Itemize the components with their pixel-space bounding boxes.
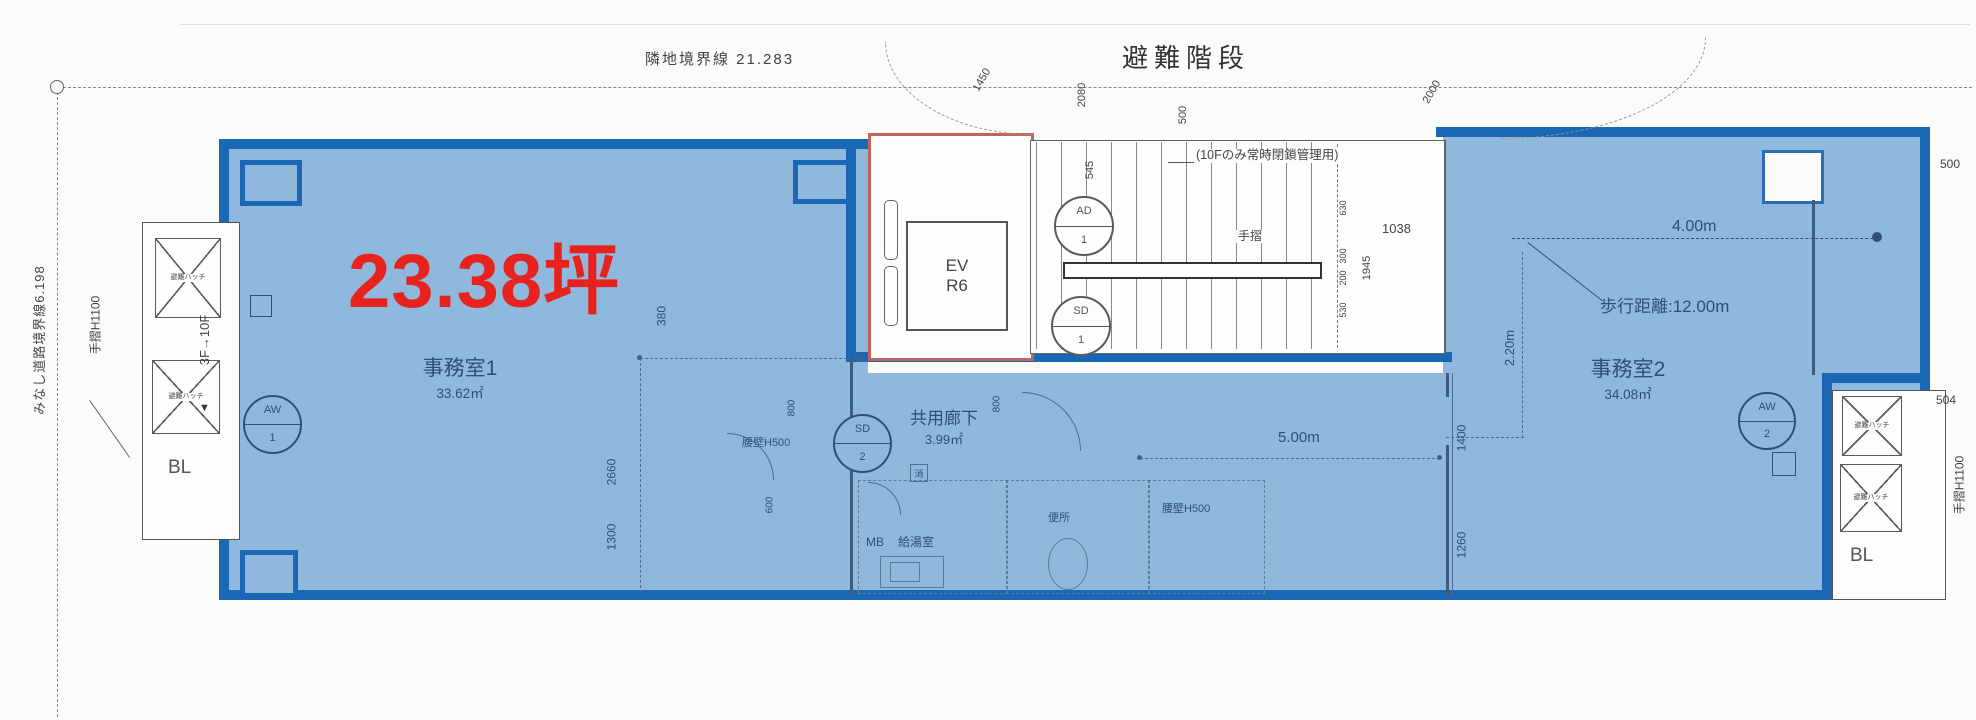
outline-room2-right (1920, 127, 1930, 393)
ev-cab: EV R6 (906, 221, 1008, 331)
room2-depth-dim: 2.20m (1503, 330, 1517, 366)
balcony-right-label: BL (1850, 546, 1873, 567)
aw1-num: 1 (245, 424, 300, 452)
dim-300: 300 (1339, 248, 1349, 263)
sd1-code: SD (1053, 298, 1109, 326)
ev-label-line1: EV (946, 256, 969, 276)
room2-area: 34.08㎡ (1558, 383, 1698, 403)
fire-extinguisher-label: 消 (914, 467, 923, 480)
dim-2000: 2000 (1421, 78, 1444, 105)
mb-label: MB (866, 536, 884, 549)
window-box-room2-top (1762, 150, 1824, 204)
wall-corridor-room2-a (1446, 373, 1449, 397)
dim-node (637, 355, 642, 360)
ad1-code: AD (1056, 198, 1112, 226)
dim-node (1137, 455, 1142, 460)
ev-door-slat-1 (884, 200, 898, 260)
wall-corridor-room2-b (1446, 445, 1449, 595)
handrail-right-label: 手摺H1100 (1953, 456, 1966, 514)
wall-room2-strip (1812, 200, 1815, 375)
dim-2660: 2660 (605, 459, 618, 486)
door-symbol-ad1: AD 1 (1054, 196, 1114, 256)
hatch-box-right-1: 避難ハッチ (1842, 396, 1902, 456)
aw2-code: AW (1740, 394, 1794, 421)
hatch-label: 避難ハッチ (1853, 494, 1890, 501)
stair-note: (10Fのみ常時閉鎖管理用) (1196, 149, 1338, 163)
room1-dim-line-v (640, 358, 641, 593)
room1-name: 事務室1 (395, 352, 525, 382)
room2-walk-distance: 歩行距離:12.00m (1600, 298, 1729, 317)
highlight-area-tsubo: 23.38坪 (348, 240, 620, 324)
dim-1400: 1400 (1455, 425, 1468, 452)
kitchen-sink-basin (890, 562, 920, 582)
window-symbol-aw2: AW 2 (1738, 392, 1796, 450)
stair-handrail-bar (1063, 262, 1322, 279)
stair-note-leader (1168, 162, 1194, 163)
dim-500-top: 500 (1177, 106, 1189, 124)
corridor-width-dim: 5.00m (1278, 430, 1320, 447)
room2-width-dim-line (1512, 238, 1878, 239)
dim-500-right: 500 (1940, 158, 1960, 171)
room2-width-dim: 4.00m (1672, 218, 1716, 236)
marker-box-room2 (1772, 452, 1796, 476)
room2-depth-dim-line-v (1522, 252, 1523, 438)
sd1-num: 1 (1053, 326, 1109, 355)
boundary-top-label: 隣地境界線 21.283 (645, 52, 794, 69)
dim-1300: 1300 (605, 524, 618, 551)
sd2-code: SD (835, 416, 890, 443)
room2-name: 事務室2 (1558, 353, 1698, 383)
dim-2080: 2080 (1076, 83, 1088, 107)
dim-600: 600 (765, 497, 776, 514)
dim-630: 630 (1339, 200, 1349, 215)
stair-title: 避難階段 (1122, 44, 1250, 73)
outline-balcony-left (1822, 373, 1832, 600)
room1-label-block: 事務室1 33.62㎡ (395, 352, 525, 402)
aw1-code: AW (245, 397, 300, 424)
kitchen-name: 給湯室 (898, 536, 934, 549)
door-arc-top-2 (1500, 38, 1706, 139)
room1-fill (223, 143, 868, 600)
hatch-box-right-2: 避難ハッチ (1840, 464, 1902, 532)
dim-chain-1400-1260 (1452, 373, 1453, 595)
door-symbol-sd1: SD 1 (1051, 296, 1111, 356)
handrail-left-leader (89, 400, 130, 458)
door-symbol-sd2: SD 2 (833, 414, 892, 473)
handrail-left-label: 手摺H1100 (89, 296, 102, 354)
stair-handrail-label: 手摺 (1236, 230, 1264, 243)
dim-800-a: 800 (787, 400, 798, 417)
room1-area: 33.62㎡ (395, 382, 525, 402)
boundary-line-left (57, 87, 58, 717)
dim-200: 200 (1339, 270, 1349, 285)
floor-plan: EV R6 手摺 (10Fのみ常時閉鎖管理用) AD 1 SD 1 1038 1… (0, 0, 1976, 720)
door-arc-top-1 (885, 42, 1034, 135)
dim-530: 530 (1339, 302, 1349, 317)
dim-1260: 1260 (1455, 532, 1468, 559)
toilet-name: 便所 (1048, 512, 1070, 524)
dim-1945: 1945 (1361, 256, 1373, 280)
column-notch-1 (240, 160, 302, 206)
hatch-label: 避難ハッチ (1854, 422, 1891, 429)
draft-line-top (180, 24, 1970, 25)
marker-box-room1 (250, 295, 272, 317)
dim-504: 504 (1936, 394, 1956, 407)
hatch-label: 避難ハッチ (168, 393, 205, 400)
dim-node (1437, 455, 1442, 460)
outline-balcony-top (1822, 373, 1930, 383)
corridor-dim-line (1140, 458, 1440, 459)
dim-545: 545 (1084, 161, 1096, 179)
ev-label-line2: R6 (946, 276, 968, 296)
ev-door-slat-2 (884, 266, 898, 326)
floors-range-arrow: ▼ (199, 402, 210, 414)
toilet-wc-icon (1048, 538, 1088, 590)
column-notch-3 (240, 550, 298, 598)
hatch-label: 避難ハッチ (170, 274, 207, 281)
window-symbol-aw1: AW 1 (243, 395, 302, 454)
dim-node (858, 355, 863, 360)
boundary-left-label: みなし道路境界線6.198 (33, 265, 47, 415)
hatch-box-left-1: 避難ハッチ (155, 238, 221, 318)
room2-width-dim-node (1872, 232, 1882, 242)
outline-room1-top (219, 139, 874, 149)
dim-1038: 1038 (1382, 222, 1411, 236)
sd2-num: 2 (835, 443, 890, 471)
aw2-num: 2 (1740, 421, 1794, 449)
service-room-3 (1148, 480, 1265, 594)
room2-label-block: 事務室2 34.08㎡ (1558, 353, 1698, 403)
dim-380: 380 (655, 306, 668, 326)
hatch-box-left-2: 避難ハッチ (152, 360, 220, 434)
corridor-label-block: 共用廊下 3.99㎡ (888, 404, 1000, 448)
wall-room1-corridor (850, 357, 853, 595)
balcony-left-label: BL (168, 458, 191, 479)
floors-range-label: 3F→10F (198, 315, 212, 366)
column-notch-2 (793, 160, 851, 204)
corridor-name: 共用廊下 (888, 404, 1000, 429)
ad1-num: 1 (1056, 226, 1112, 255)
corridor-area: 3.99㎡ (888, 429, 1000, 448)
room1-dim-line-h (640, 358, 862, 359)
boundary-node-circle (50, 80, 64, 94)
